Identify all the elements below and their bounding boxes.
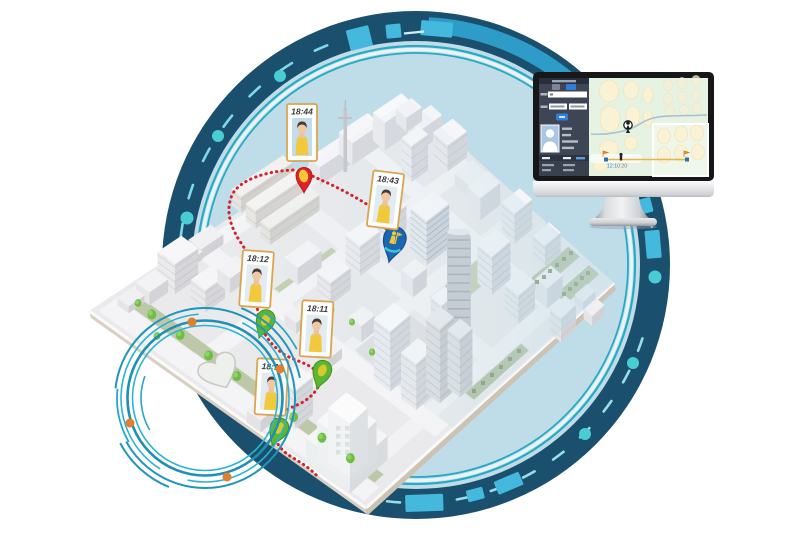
svg-text:18:44: 18:44 — [291, 107, 313, 117]
svg-text:18:12: 18:12 — [247, 253, 270, 265]
svg-text:18:11: 18:11 — [307, 303, 329, 314]
svg-text:12:10:20: 12:10:20 — [607, 164, 627, 170]
